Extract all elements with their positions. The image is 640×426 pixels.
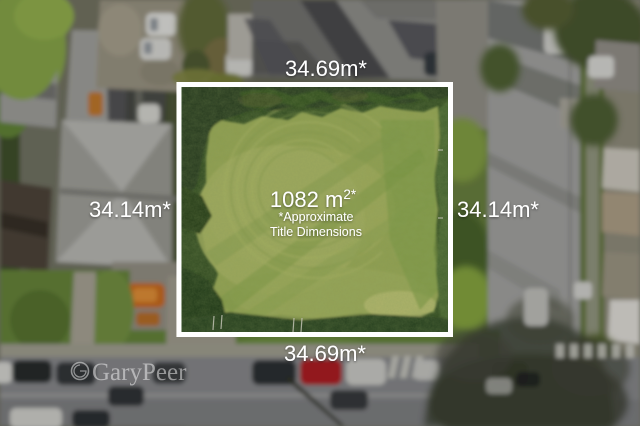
svg-text:GaryPeer: GaryPeer [92,359,187,386]
svg-text:Title Dimensions: Title Dimensions [270,225,362,239]
svg-text:34.69m*: 34.69m* [284,341,366,366]
svg-text:34.14m*: 34.14m* [457,197,539,222]
svg-text:34.69m*: 34.69m* [285,56,367,81]
svg-text:*Approximate: *Approximate [278,210,353,224]
svg-text:34.14m*: 34.14m* [89,197,171,222]
